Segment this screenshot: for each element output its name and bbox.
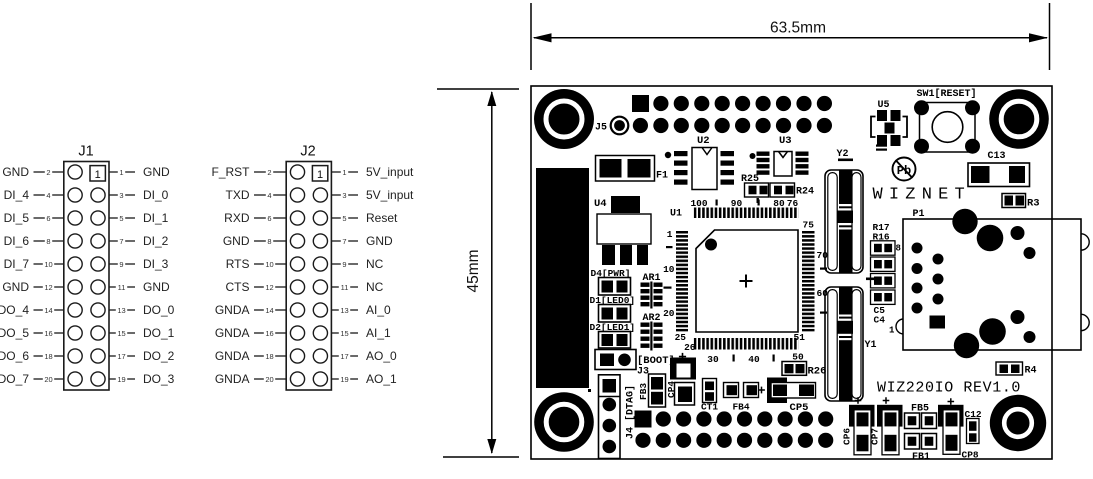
svg-text:80: 80	[773, 198, 785, 209]
svg-text:GND: GND	[143, 165, 170, 179]
svg-text:FB3: FB3	[638, 383, 649, 400]
svg-text:7: 7	[119, 237, 123, 246]
svg-text:20: 20	[265, 375, 273, 384]
svg-text:GND: GND	[2, 280, 29, 294]
svg-text:13: 13	[117, 306, 125, 315]
svg-text:DI_0: DI_0	[143, 188, 169, 202]
svg-text:11: 11	[118, 283, 126, 292]
svg-text:AO_1: AO_1	[366, 372, 397, 386]
svg-text:4: 4	[46, 191, 50, 200]
svg-text:AO_0: AO_0	[366, 349, 397, 363]
svg-text:FB1: FB1	[912, 452, 930, 463]
svg-text:DI_7: DI_7	[4, 257, 30, 271]
svg-text:GND: GND	[2, 165, 29, 179]
svg-text:17: 17	[117, 352, 125, 361]
svg-text:AI_0: AI_0	[366, 303, 391, 317]
svg-text:8: 8	[46, 237, 50, 246]
svg-text:7: 7	[342, 237, 346, 246]
svg-text:10: 10	[663, 264, 675, 275]
svg-text:DI_6: DI_6	[4, 234, 30, 248]
svg-text:U5: U5	[878, 100, 890, 111]
svg-text:DO_7: DO_7	[0, 372, 29, 386]
svg-text:GNDA: GNDA	[215, 372, 250, 386]
svg-text:DO_3: DO_3	[143, 372, 175, 386]
svg-text:J5: J5	[595, 123, 607, 134]
svg-text:12: 12	[44, 283, 52, 292]
svg-text:U3: U3	[779, 135, 792, 147]
svg-text:F_RST: F_RST	[211, 165, 250, 179]
svg-text:C4: C4	[874, 315, 886, 326]
svg-text:51: 51	[794, 332, 806, 343]
svg-text:WIZ220IO REV1.0: WIZ220IO REV1.0	[877, 380, 1021, 397]
svg-text:CP4: CP4	[666, 381, 677, 398]
svg-text:J3: J3	[637, 367, 649, 378]
svg-text:DI_2: DI_2	[143, 234, 169, 248]
svg-text:U2: U2	[697, 135, 710, 147]
svg-text:12: 12	[265, 283, 273, 292]
svg-text:DI_3: DI_3	[143, 257, 169, 271]
svg-text:Y1: Y1	[865, 340, 877, 351]
svg-text:19: 19	[340, 375, 348, 384]
svg-text:TXD: TXD	[226, 188, 250, 202]
svg-text:40: 40	[748, 354, 760, 365]
svg-text:F1: F1	[656, 171, 668, 182]
svg-text:70: 70	[817, 250, 829, 261]
svg-text:1: 1	[342, 168, 346, 177]
svg-text:RTS: RTS	[226, 257, 250, 271]
svg-text:DI_4: DI_4	[4, 188, 30, 202]
svg-text:2: 2	[267, 168, 271, 177]
svg-text:RXD: RXD	[224, 211, 250, 225]
svg-text:CTS: CTS	[226, 280, 250, 294]
svg-text:76: 76	[787, 198, 799, 209]
svg-text:DO_6: DO_6	[0, 349, 29, 363]
svg-text:R24: R24	[796, 187, 814, 198]
svg-text:2: 2	[46, 168, 50, 177]
svg-text:DO_5: DO_5	[0, 326, 29, 340]
svg-text:18: 18	[265, 352, 273, 361]
svg-text:75: 75	[803, 220, 815, 231]
svg-text:DO_1: DO_1	[143, 326, 175, 340]
svg-text:SW1[RESET]: SW1[RESET]	[917, 88, 977, 100]
svg-text:CP7: CP7	[870, 428, 881, 445]
svg-text:8: 8	[267, 237, 271, 246]
svg-text:WIZNET: WIZNET	[873, 186, 971, 205]
svg-text:GND: GND	[366, 234, 393, 248]
svg-text:DO_2: DO_2	[143, 349, 175, 363]
svg-text:GNDA: GNDA	[215, 303, 250, 317]
svg-text:1: 1	[119, 168, 123, 177]
svg-text:13: 13	[340, 306, 348, 315]
svg-text:R4: R4	[1025, 366, 1037, 377]
svg-text:U1: U1	[670, 209, 682, 220]
svg-text:AI_1: AI_1	[366, 326, 391, 340]
svg-text:CT1: CT1	[701, 402, 718, 413]
svg-text:5: 5	[342, 214, 346, 223]
svg-text:26: 26	[684, 342, 696, 353]
svg-text:20: 20	[663, 308, 675, 319]
svg-text:90: 90	[731, 198, 743, 209]
svg-text:8: 8	[896, 244, 901, 254]
svg-text:DO_4: DO_4	[0, 303, 29, 317]
svg-text:9: 9	[119, 260, 123, 269]
svg-text:19: 19	[117, 375, 125, 384]
svg-text:63.5mm: 63.5mm	[770, 20, 826, 37]
svg-text:CP6: CP6	[842, 428, 853, 445]
svg-text:15: 15	[117, 329, 125, 338]
svg-text:100: 100	[690, 198, 707, 209]
svg-text:Y2: Y2	[837, 149, 849, 160]
svg-text:1: 1	[95, 169, 101, 181]
svg-text:30: 30	[707, 354, 719, 365]
svg-text:15: 15	[340, 329, 348, 338]
svg-text:17: 17	[340, 352, 348, 361]
svg-text:DI_1: DI_1	[143, 211, 169, 225]
svg-text:J2: J2	[300, 144, 315, 160]
svg-text:1: 1	[889, 326, 895, 336]
svg-text:10: 10	[44, 260, 52, 269]
svg-text:9: 9	[342, 260, 346, 269]
svg-text:DI_5: DI_5	[4, 211, 30, 225]
svg-text:[BOOT]: [BOOT]	[637, 355, 675, 367]
svg-text:16: 16	[44, 329, 52, 338]
svg-text:20: 20	[44, 375, 52, 384]
svg-text:18: 18	[44, 352, 52, 361]
svg-text:J1: J1	[78, 144, 93, 160]
svg-text:5V_input: 5V_input	[366, 188, 414, 202]
svg-text:4: 4	[267, 191, 271, 200]
svg-text:6: 6	[267, 214, 271, 223]
svg-text:DO_0: DO_0	[143, 303, 175, 317]
svg-text:NC: NC	[366, 257, 384, 271]
svg-text:NC: NC	[366, 280, 384, 294]
svg-text:R3: R3	[1027, 198, 1040, 210]
svg-text:6: 6	[46, 214, 50, 223]
svg-text:16: 16	[265, 329, 273, 338]
svg-text:14: 14	[44, 306, 52, 315]
svg-text:Pb: Pb	[897, 164, 911, 178]
svg-text:3: 3	[119, 191, 123, 200]
svg-text:5: 5	[119, 214, 123, 223]
svg-text:11: 11	[341, 283, 349, 292]
svg-text:GNDA: GNDA	[215, 326, 250, 340]
svg-text:GNDA: GNDA	[215, 349, 250, 363]
svg-text:R26: R26	[808, 366, 827, 378]
svg-text:10: 10	[265, 260, 273, 269]
svg-text:C13: C13	[988, 151, 1006, 162]
svg-text:45mm: 45mm	[465, 249, 482, 292]
svg-text:FB4: FB4	[732, 402, 749, 413]
svg-text:1: 1	[667, 229, 673, 240]
svg-text:U4: U4	[594, 198, 607, 210]
svg-text:GND: GND	[143, 280, 170, 294]
svg-text:14: 14	[265, 306, 273, 315]
svg-text:5V_input: 5V_input	[366, 165, 414, 179]
svg-text:GND: GND	[223, 234, 250, 248]
svg-text:1: 1	[317, 169, 323, 181]
svg-text:Reset: Reset	[366, 211, 398, 225]
svg-text:3: 3	[342, 191, 346, 200]
